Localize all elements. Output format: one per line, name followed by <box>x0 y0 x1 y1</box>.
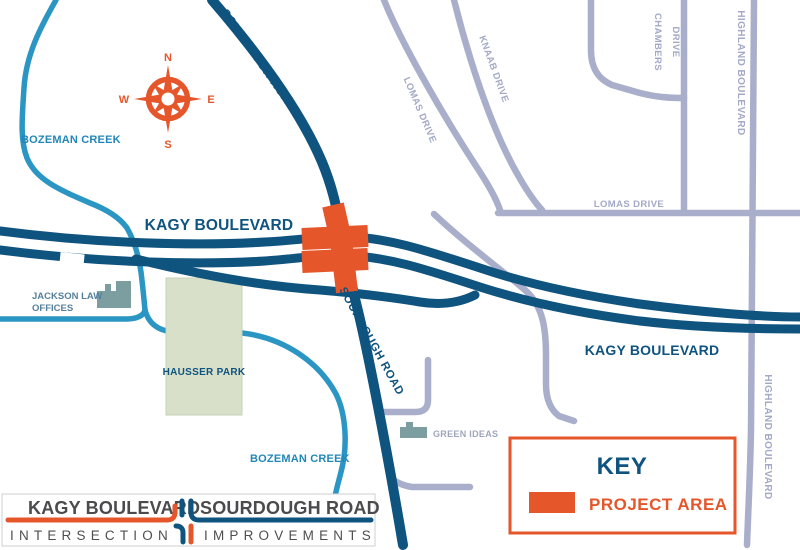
road-highland-boulevard <box>747 0 754 545</box>
project-map: N S W E KAGY BOULEVARD KAGY BOULEVARD SO… <box>0 0 800 550</box>
title-sub2: IMPROVEMENTS <box>204 528 376 543</box>
project-area-swatch <box>529 492 575 513</box>
road-knaab <box>454 0 542 210</box>
bozeman-creek-label-south: BOZEMAN CREEK <box>250 453 350 465</box>
key-title: KEY <box>597 453 648 480</box>
compass-north-label: N <box>164 52 172 64</box>
hausser-park-label: HAUSSER PARK <box>163 367 246 378</box>
compass-west-label: W <box>119 94 130 106</box>
compass-center <box>162 93 175 106</box>
chambers-drive-label-line1: CHAMBERS <box>652 13 663 71</box>
compass-south-label: S <box>164 139 171 151</box>
key-legend: KEY PROJECT AREA <box>510 438 735 533</box>
map-canvas: N S W E KAGY BOULEVARD KAGY BOULEVARD SO… <box>0 0 800 550</box>
project-area-kagy-lower-bar <box>302 259 368 262</box>
title-sub1: INTERSECTION <box>10 528 173 543</box>
title-road2: SOURDOUGH ROAD <box>200 498 380 518</box>
green-ideas-label: GREEN IDEAS <box>433 429 498 439</box>
kagy-boulevard-label-west: KAGY BOULEVARD <box>145 217 294 234</box>
kagy-boulevard-label-east: KAGY BOULEVARD <box>585 342 720 358</box>
road-connector-center <box>434 214 574 421</box>
road-stub-green-ideas-south <box>390 478 470 487</box>
chambers-drive-label-line2: DRIVE <box>670 26 681 57</box>
project-area-label: PROJECT AREA <box>589 495 728 514</box>
green-ideas-building <box>400 422 427 438</box>
bozeman-creek-label-north: BOZEMAN CREEK <box>21 134 121 146</box>
jackson-law-label-line1: JACKSON LAW <box>32 291 102 302</box>
sourdough-road-label-north: SOURDOUGH ROAD <box>218 7 298 113</box>
highland-boulevard-label-south: HIGHLAND BOULEVARD <box>762 374 773 499</box>
compass-rose: N S W E <box>119 52 215 151</box>
title-block: KAGY BOULEVARD SOURDOUGH ROAD INTERSECTI… <box>2 494 380 546</box>
kagy-median-gap <box>60 258 84 261</box>
lomas-drive-diagonal-label: LOMAS DRIVE <box>401 76 439 145</box>
project-area-kagy-upper-bar <box>302 236 368 239</box>
hausser-park-area <box>166 278 242 415</box>
lomas-drive-horizontal-label: LOMAS DRIVE <box>594 199 664 210</box>
compass-east-label: E <box>207 94 214 106</box>
jackson-law-label-line2: OFFICES <box>32 303 73 314</box>
highland-boulevard-label-north: HIGHLAND BOULEVARD <box>735 10 746 135</box>
